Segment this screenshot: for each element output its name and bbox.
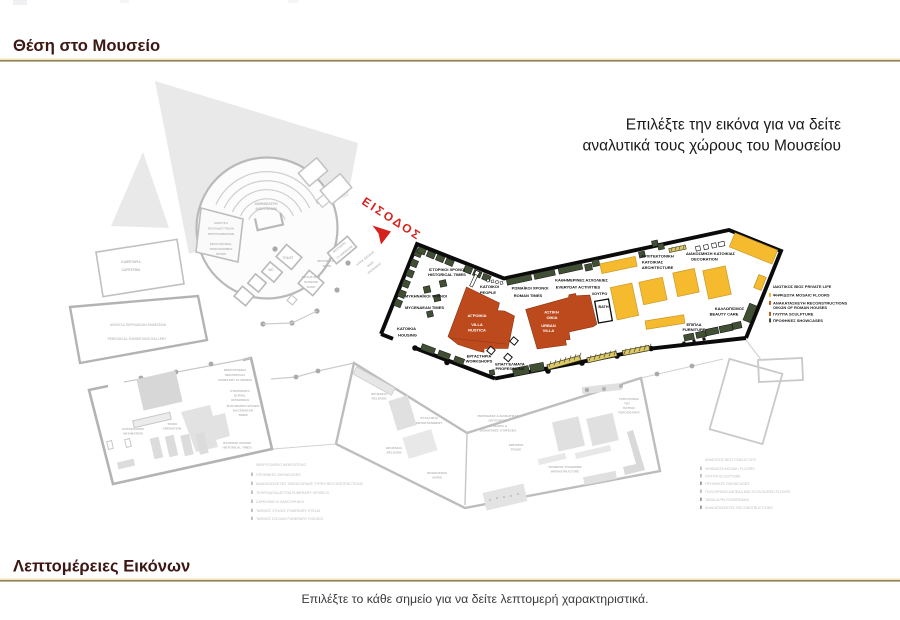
svg-text:ΜΥΚΗΝΑΪΚΟΙ ΧΡΟΝΟΙ: ΜΥΚΗΝΑΪΚΟΙ ΧΡΟΝΟΙ [227, 404, 260, 408]
svg-text:FURNITURE: FURNITURE [682, 327, 705, 332]
svg-text:TIMES: TIMES [238, 413, 247, 417]
svg-text:SHOP: SHOP [307, 285, 316, 289]
svg-text:EVERYDAY ACTIVITIES: EVERYDAY ACTIVITIES [556, 285, 601, 290]
svg-text:ΠΡΟΓΡΑΜΜΑΤΩΝ: ΠΡΟΓΡΑΜΜΑΤΩΝ [208, 232, 235, 236]
svg-text:TABULA PEUTINGERIANA: TABULA PEUTINGERIANA [705, 498, 749, 502]
svg-text:RELIGION: RELIGION [372, 397, 388, 401]
svg-text:ΨΗΦΙΔΩΤΑ MOSAIC FLOORS: ΨΗΦΙΔΩΤΑ MOSAIC FLOORS [705, 467, 755, 471]
svg-text:ΤΟΠΟΓΡΑΦΙΑ: ΤΟΠΟΓΡΑΦΙΑ [619, 397, 640, 401]
svg-text:ΔΙΟΙΚΗΤΙΚΕΣ ΥΠΗΡΕΣΙΕΣ: ΔΙΟΙΚΗΤΙΚΕΣ ΥΠΗΡΕΣΙΕΣ [480, 429, 517, 433]
svg-text:ΠΩΛΗΤΗΡΙΟ: ΠΩΛΗΤΗΡΙΟ [302, 275, 321, 279]
svg-text:ΠΕΡΙΟΔΙΚΕΣ & ΔΙΟΙΚΗΤΙΚΕΣ: ΠΕΡΙΟΔΙΚΕΣ & ΔΙΟΙΚΗΤΙΚΕΣ [477, 414, 518, 418]
svg-text:ΑΓΡΟΙΚΙΑ: ΑΓΡΟΙΚΙΑ [467, 313, 486, 318]
svg-text:ΙΣΤΟΡΙΚΟΙ ΧΡΟΝΟΙ: ΙΣΤΟΡΙΚΟΙ ΧΡΟΝΟΙ [223, 441, 251, 445]
svg-text:ΠΡΟΘΗΚΕΣ SHOWCASES: ΠΡΟΘΗΚΕΣ SHOWCASES [256, 473, 301, 477]
svg-text:INHUMATION: INHUMATION [123, 432, 143, 436]
svg-text:ΚΤΕΡΙΣΜΑΤΑ: ΚΤΕΡΙΣΜΑΤΑ [230, 389, 250, 393]
svg-text:DESK: DESK [323, 264, 332, 268]
svg-text:ΤΑΦΟΙ: ΤΑΦΟΙ [167, 422, 177, 426]
svg-text:ΑΡΧΙΤΕΚΤΟΝΙΚΗ: ΑΡΧΙΤΕΚΤΟΝΙΚΗ [641, 254, 674, 259]
svg-text:ROMAN TIMES: ROMAN TIMES [514, 293, 543, 298]
svg-text:HISTORICAL TIMES: HISTORICAL TIMES [428, 272, 466, 277]
svg-text:VILLA: VILLA [471, 322, 483, 327]
svg-text:ARCHITECTURE: ARCHITECTURE [642, 265, 674, 270]
svg-text:PROFESSIONS: PROFESSIONS [496, 366, 525, 371]
svg-text:HOUSING: HOUSING [398, 333, 417, 338]
svg-text:CAFETERIA: CAFETERIA [122, 268, 141, 272]
svg-text:ΝΕΚΡΟΠΟΛΗ: ΝΕΚΡΟΠΟΛΗ [225, 373, 246, 377]
svg-text:ΠΡΟΘΗΚΕΣ SHOWCASES: ΠΡΟΘΗΚΕΣ SHOWCASES [705, 482, 750, 486]
svg-text:ΚΑΦΕΤΑΡΙΑ: ΚΑΦΕΤΑΡΙΑ [121, 260, 141, 264]
svg-text:Θέση στο Μουσείο: Θέση στο Μουσείο [13, 36, 160, 55]
svg-text:Επιλέξτε την εικόνα για να δεί: Επιλέξτε την εικόνα για να δείτε [626, 117, 841, 134]
svg-text:TOPOGRAPHY: TOPOGRAPHY [618, 411, 641, 415]
svg-text:INFRASTRUCTURE: INFRASTRUCTURE [551, 470, 580, 474]
svg-text:Λεπτομέρειες Εικόνων: Λεπτομέρειες Εικόνων [13, 557, 190, 576]
svg-text:ΙΔΙΩΤΙΚΟΣ ΒΙΟΣ PRIVATE LIFE: ΙΔΙΩΤΙΚΟΣ ΒΙΟΣ PRIVATE LIFE [773, 284, 832, 289]
svg-text:CEMETERY PLANNING: CEMETERY PLANNING [218, 378, 253, 382]
svg-text:ΑΣΤΙΚΗ: ΑΣΤΙΚΗ [544, 310, 559, 315]
svg-text:MUSEUM: MUSEUM [304, 280, 318, 284]
svg-text:ΤΑΦΙΚΕΣ ΣΤΗΛΕΣ FUNERARY STELA: ΤΑΦΙΚΕΣ ΣΤΗΛΕΣ FUNERARY STELAI [256, 509, 320, 513]
svg-text:VILLA: VILLA [543, 328, 555, 333]
svg-text:ΠΟΛΥΧΡΩΜΑ ΔΑΠΕΔΑ MULTICOLOURE: ΠΟΛΥΧΡΩΜΑ ΔΑΠΕΔΑ MULTICOLOURED FLOORS [705, 490, 791, 494]
svg-text:ΨΥΧΑΓΩΓΙΑ: ΨΥΧΑΓΩΓΙΑ [420, 416, 439, 420]
svg-text:ΤΗΣ: ΤΗΣ [624, 402, 630, 406]
svg-text:ΚΑΤΟΙΚΙΑΣ: ΚΑΤΟΙΚΙΑΣ [642, 260, 664, 265]
svg-text:ΛΕΙΤΟΥΡΓΙΕΣ: ΛΕΙΤΟΥΡΓΙΕΣ [488, 419, 508, 423]
svg-text:ΕΜΠΟΡΙΟ: ΕΜΠΟΡΙΟ [509, 443, 524, 447]
svg-text:ΠΡΟΘΗΚΕΣ SHOWCASES: ΠΡΟΘΗΚΕΣ SHOWCASES [773, 318, 823, 323]
svg-text:ΘΡΗΣΚΕΙΑ: ΘΡΗΣΚΕΙΑ [386, 446, 403, 450]
svg-text:ROOM: ROOM [216, 252, 226, 256]
svg-text:ΤΑΦΙΚΕΣ ΕΙΣΟΔΟΙ FUNERARY EISO: ΤΑΦΙΚΕΣ ΕΙΣΟΔΟΙ FUNERARY EISODOI [256, 517, 323, 521]
svg-text:ΣΑΡΚΟΦΑΓΟΙ SARCOPHAGI: ΣΑΡΚΟΦΑΓΟΙ SARCOPHAGI [256, 500, 304, 504]
svg-text:ΝΕΚΡΟΤΑΦΕΙΟ ΝΕΚΡΟΠΟΛΙΣ: ΝΕΚΡΟΤΑΦΕΙΟ ΝΕΚΡΟΠΟΛΙΣ [256, 463, 307, 467]
svg-text:ΚΑΤΟΙΚΙΑ: ΚΑΤΟΙΚΙΑ [397, 326, 416, 331]
svg-text:ΠΑΤΡΑΣ: ΠΑΤΡΑΣ [623, 406, 635, 410]
svg-text:ΑΙΘΟΥΣΑ ΠΕΡΙΟΔΙΚΩΝ ΕΚΘΕΣΕΩΝ: ΑΙΘΟΥΣΑ ΠΕΡΙΟΔΙΚΩΝ ΕΚΘΕΣΕΩΝ [110, 323, 167, 327]
svg-text:BATH: BATH [598, 305, 609, 309]
svg-text:CREMATION: CREMATION [163, 427, 182, 431]
svg-text:ΣΥΝΕΔΡΙΑ &: ΣΥΝΕΔΡΙΑ & [489, 424, 508, 428]
svg-text:HISTORICAL TIMES: HISTORICAL TIMES [222, 446, 251, 450]
svg-text:ΨΗΦΙΔΩΤΑ MOSAIC FLOORS: ΨΗΦΙΔΩΤΑ MOSAIC FLOORS [773, 293, 830, 298]
svg-text:ΑΙΘΟΥΣΑ: ΑΙΘΟΥΣΑ [214, 221, 229, 225]
svg-text:ΚΑΛΛΩΠΙΣΜΟΣ: ΚΑΛΛΩΠΙΣΜΟΣ [715, 306, 745, 311]
svg-text:TOILET: TOILET [282, 256, 293, 260]
svg-text:RUSTICA: RUSTICA [468, 328, 486, 333]
svg-text:MYCENAEAN: MYCENAEAN [233, 409, 254, 413]
svg-text:BURIAL: BURIAL [234, 394, 246, 398]
svg-text:AUDITORIUM: AUDITORIUM [255, 207, 277, 211]
svg-text:PERIODICAL EXHIBITIONS GALLERY: PERIODICAL EXHIBITIONS GALLERY [108, 337, 168, 341]
svg-text:ENTERTAINMENT: ENTERTAINMENT [416, 421, 442, 425]
svg-text:ΔΙΑΚΟΣΜΗΣΗ ΚΑΤΟΙΚΙΑΣ: ΔΙΑΚΟΣΜΗΣΗ ΚΑΤΟΙΚΙΑΣ [686, 251, 736, 256]
svg-text:ΚΑΤΟΙΚΟΙ: ΚΑΤΟΙΚΟΙ [480, 284, 499, 289]
svg-text:OFFERINGS: OFFERINGS [231, 398, 249, 402]
svg-text:ΕΝΤΑΦΙΑΣΜΟΙ: ΕΝΤΑΦΙΑΣΜΟΙ [122, 427, 144, 431]
svg-text:PEOPLE: PEOPLE [480, 290, 497, 295]
svg-text:ΘΡΗΣΚΕΙΑ: ΘΡΗΣΚΕΙΑ [371, 392, 388, 396]
svg-text:RELIGION: RELIGION [387, 451, 403, 455]
svg-text:ΓΛΥΠΤΑ SCULPTURE: ΓΛΥΠΤΑ SCULPTURE [773, 312, 814, 317]
svg-text:αναλυτικά τους χώρους του Μουσ: αναλυτικά τους χώρους του Μουσείου [582, 138, 841, 155]
svg-text:ΤΕΦΡΟΔΟΧΑ ΑΓΓΕΙΑ FUNERARY VES: ΤΕΦΡΟΔΟΧΑ ΑΓΓΕΙΑ FUNERARY VESSELS [256, 491, 330, 495]
svg-text:ΝΕΚΡΟΤΑΦΕΙΑ: ΝΕΚΡΟΤΑΦΕΙΑ [224, 368, 247, 372]
svg-text:DECORATION: DECORATION [691, 257, 718, 262]
svg-text:ΡΩΜΑΪΚΟΙ ΧΡΟΝΟΙ: ΡΩΜΑΪΚΟΙ ΧΡΟΝΟΙ [512, 286, 549, 291]
svg-text:ΟΙΚΩΝ OF ROMAN HOUSES: ΟΙΚΩΝ OF ROMAN HOUSES [773, 305, 827, 310]
svg-text:Επιλέξτε το κάθε σημείο για να: Επιλέξτε το κάθε σημείο για να δείτε λεπ… [301, 592, 648, 606]
svg-text:BEAUTY CARE: BEAUTY CARE [710, 312, 739, 317]
svg-text:ΧΩΡΟΙ: ΧΩΡΟΙ [432, 476, 442, 480]
svg-text:WC: WC [268, 268, 274, 272]
svg-text:ΓΛΥΠΤΑ SCULPTURE: ΓΛΥΠΤΑ SCULPTURE [705, 475, 741, 479]
svg-text:ΔΗΜΟΣΙΟΣ ΒΙΟΣ PUBLIC LIFE: ΔΗΜΟΣΙΟΣ ΒΙΟΣ PUBLIC LIFE [705, 458, 757, 462]
svg-text:ΑΝΑΚΑΤΑΣΚΕΥΕΣ RECONSTRUCTIONS: ΑΝΑΚΑΤΑΣΚΕΥΕΣ RECONSTRUCTIONS [705, 506, 773, 510]
svg-text:ΕΚΠΑΙΔΕΥΤΙΚΩΝ: ΕΚΠΑΙΔΕΥΤΙΚΩΝ [208, 227, 234, 231]
svg-text:PROGRAMMES: PROGRAMMES [210, 247, 233, 251]
svg-text:ΒΟΗΘΗΤΙΚΟΙ: ΒΟΗΘΗΤΙΚΟΙ [427, 471, 447, 475]
svg-text:MYCENAEAN TIMES: MYCENAEAN TIMES [405, 305, 444, 310]
svg-text:ΑΝΑΚΑΤΑΣΚΕΥΕΣ ΤΑΦΩΝ GRAVE TYP: ΑΝΑΚΑΤΑΣΚΕΥΕΣ ΤΑΦΩΝ GRAVE TYPES RECONSTR… [256, 482, 364, 486]
svg-text:EDUCATIONAL: EDUCATIONAL [210, 242, 232, 246]
svg-text:TRADE: TRADE [511, 448, 522, 452]
svg-text:WORKSHOPS: WORKSHOPS [466, 359, 493, 364]
svg-text:ΜΥΚΗΝΑΪΚΟΙ ΧΡΟΝΟΙ: ΜΥΚΗΝΑΪΚΟΙ ΧΡΟΝΟΙ [405, 294, 447, 299]
svg-text:ΑΜΦΙΘΕΑΤΡΟ: ΑΜΦΙΘΕΑΤΡΟ [254, 202, 277, 206]
svg-text:ΚΑΘΗΜΕΡΙΝΕΣ ΑΣΧΟΛΕΙΕΣ: ΚΑΘΗΜΕΡΙΝΕΣ ΑΣΧΟΛΕΙΕΣ [555, 278, 608, 283]
svg-text:ΤΕΧΝΙΚΕΣ ΥΠΟΔΟΜΕΣ: ΤΕΧΝΙΚΕΣ ΥΠΟΔΟΜΕΣ [548, 465, 582, 469]
svg-text:ΟΙΚΙΑ: ΟΙΚΙΑ [546, 315, 557, 320]
svg-text:ΛΟΥΤΡΟ: ΛΟΥΤΡΟ [592, 292, 608, 296]
